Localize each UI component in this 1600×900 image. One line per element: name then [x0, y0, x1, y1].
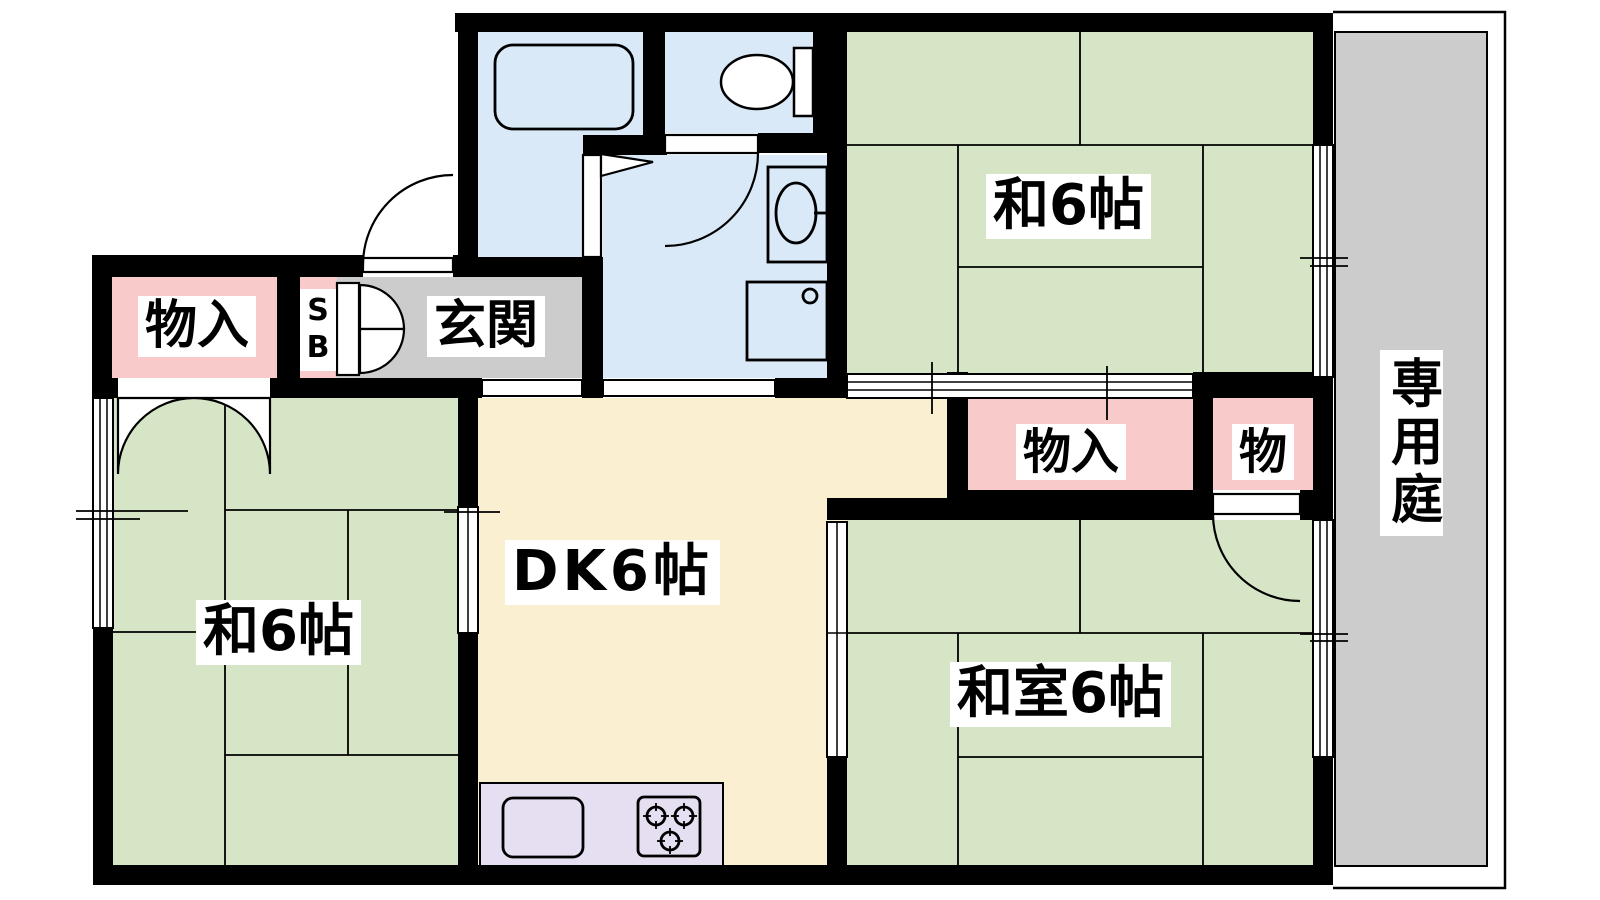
floorplan: 物入 SB 玄関 和6帖 物入 物 DK6帖 和6帖 和室6帖 専用庭 [0, 0, 1600, 900]
floorplan-drawing [0, 0, 1600, 900]
closet-left-label: 物入 [138, 296, 256, 357]
toilet-tank [794, 48, 813, 116]
window-right-bottom [1313, 520, 1333, 757]
japanese-room-left-label: 和6帖 [196, 600, 361, 665]
dining-kitchen-label: DK6帖 [505, 540, 720, 605]
sliding-door-track-bottom-room [827, 522, 847, 757]
japanese-room-bottom-label: 和室6帖 [950, 662, 1171, 727]
entrance-step-opening [482, 380, 582, 396]
window-left [93, 398, 113, 628]
window-right-top [1313, 145, 1333, 377]
toilet-bowl [721, 55, 793, 109]
sliding-door-track-top-room [847, 374, 1193, 398]
washroom-floor [603, 155, 827, 378]
closet-right-label: 物入 [1016, 424, 1126, 480]
japanese-room-top-label: 和6帖 [986, 174, 1151, 239]
sliding-door-track-left-room [458, 507, 478, 633]
closet-small-label: 物 [1232, 424, 1294, 480]
entrance-label: 玄関 [427, 296, 545, 357]
shoe-box-label: SB [300, 289, 336, 371]
washroom-opening [603, 380, 775, 396]
private-garden-label: 専用庭 [1380, 350, 1443, 536]
front-door [363, 175, 453, 272]
